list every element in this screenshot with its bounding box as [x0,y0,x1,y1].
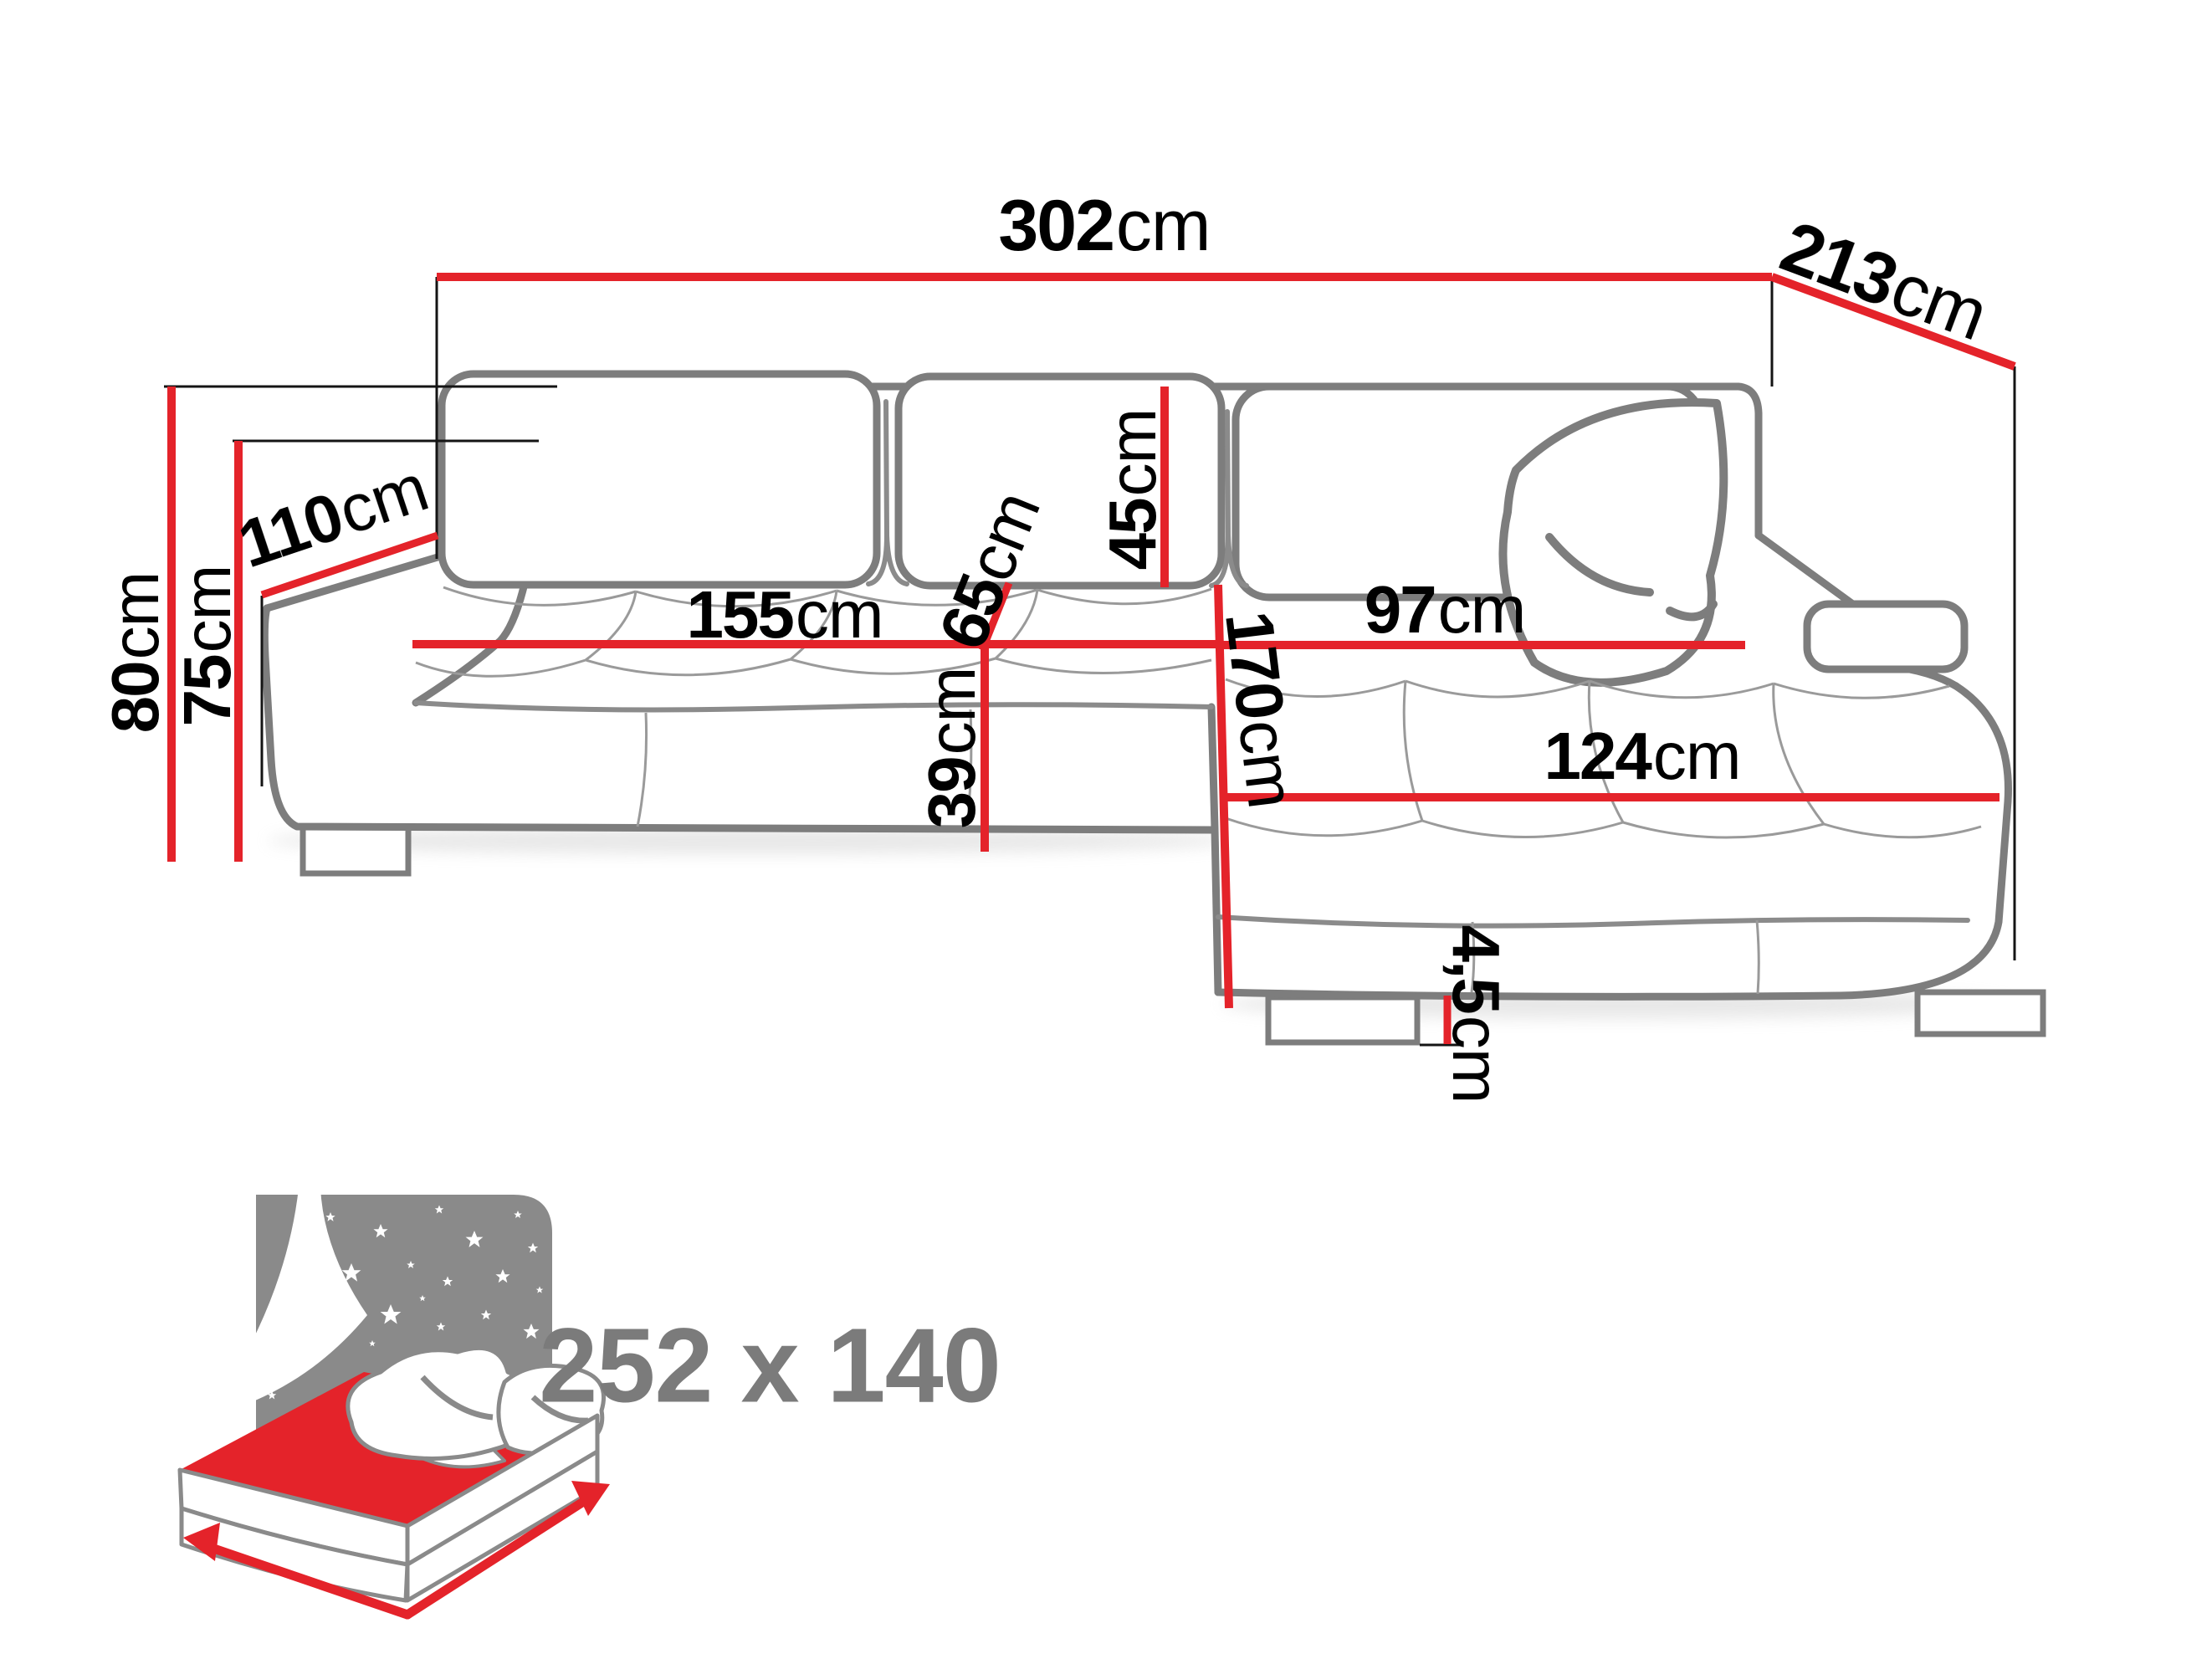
dimension-label-4-5: 4,5cm [1442,925,1509,1103]
back-cushion [442,374,877,585]
dimension-label-80: 80cm [102,572,169,734]
dimension-label-155: 155cm [686,581,883,648]
dimension-diagram: 302cm 213cm 80cm 75cm 110cm 155cm 65cm 4… [0,0,2212,1659]
dimension-label-45: 45cm [1099,409,1166,571]
dimension-label-75: 75cm [174,566,241,727]
back-cushion [899,376,1221,586]
dimension-label-302: 302cm [998,190,1210,262]
dimension-label-124: 124cm [1544,723,1740,790]
sleeping-area-size-label: 252 x 140 [539,1305,1001,1426]
chaise-front-foot [1268,997,1417,1042]
left-foot [303,827,408,873]
right-armrest-pad [1807,604,1964,669]
dimension-label-39: 39cm [919,668,986,829]
dimension-label-97: 97cm [1365,576,1526,643]
chaise-right-foot [1918,992,2043,1034]
